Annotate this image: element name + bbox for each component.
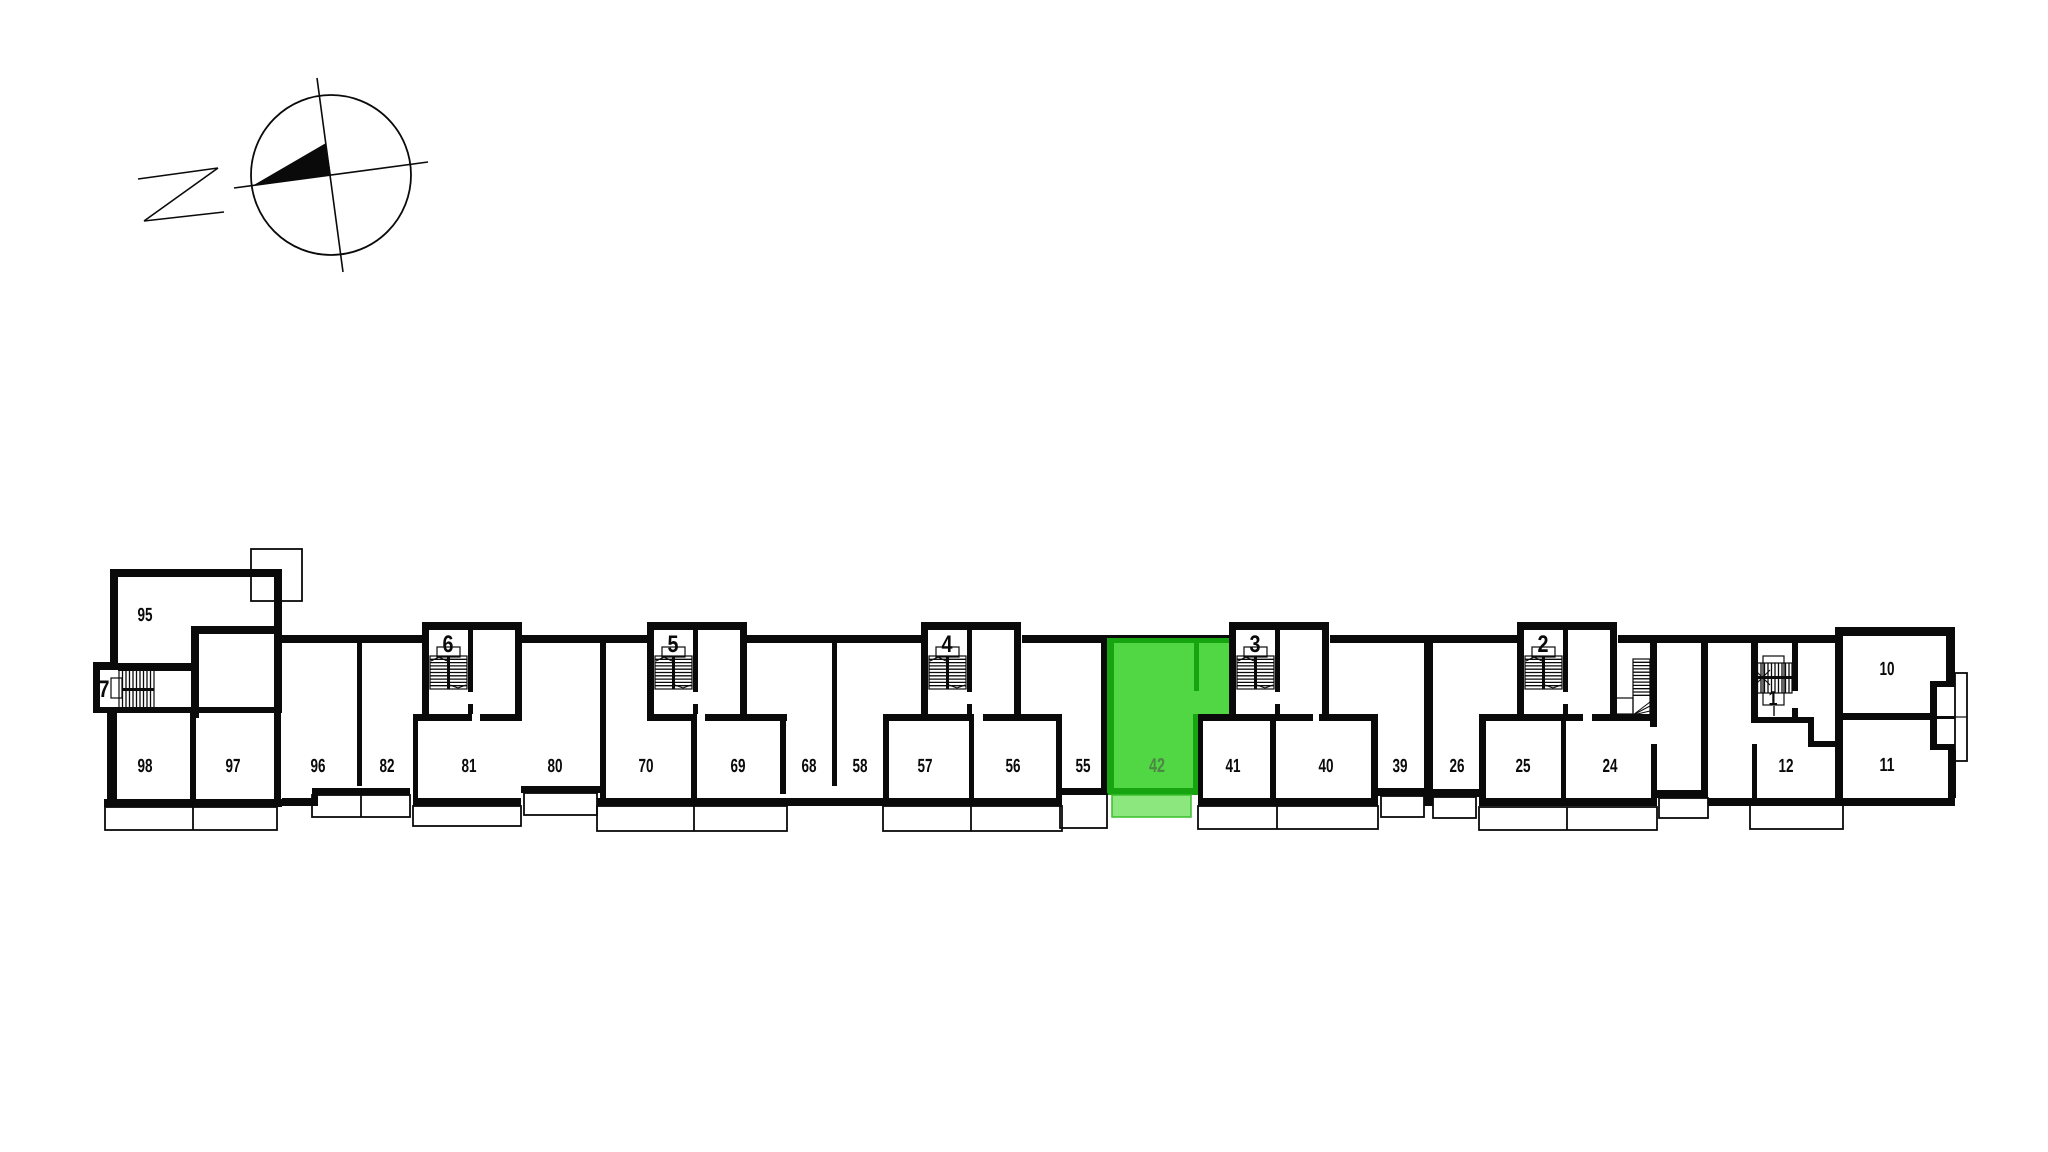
svg-text:55: 55 <box>1076 756 1091 777</box>
svg-text:39: 39 <box>1393 756 1408 777</box>
svg-text:58: 58 <box>853 756 868 777</box>
svg-text:81: 81 <box>462 756 477 777</box>
svg-text:25: 25 <box>1516 756 1531 777</box>
svg-text:10: 10 <box>1880 659 1895 680</box>
svg-text:41: 41 <box>1226 756 1241 777</box>
svg-text:5: 5 <box>668 631 679 658</box>
svg-text:57: 57 <box>918 756 933 777</box>
svg-text:6: 6 <box>443 631 454 658</box>
svg-text:12: 12 <box>1779 756 1794 777</box>
svg-text:80: 80 <box>548 756 563 777</box>
svg-text:68: 68 <box>802 756 817 777</box>
svg-text:11: 11 <box>1880 755 1895 776</box>
svg-text:96: 96 <box>311 756 326 777</box>
svg-text:98: 98 <box>138 756 153 777</box>
svg-text:40: 40 <box>1319 756 1334 777</box>
svg-text:7: 7 <box>99 676 110 703</box>
svg-text:56: 56 <box>1006 756 1021 777</box>
svg-text:97: 97 <box>226 756 241 777</box>
svg-text:3: 3 <box>1250 631 1261 658</box>
svg-text:95: 95 <box>138 605 153 626</box>
svg-text:69: 69 <box>731 756 746 777</box>
svg-text:4: 4 <box>942 631 954 658</box>
svg-text:82: 82 <box>380 756 395 777</box>
svg-text:2: 2 <box>1538 631 1549 658</box>
svg-text:70: 70 <box>639 756 654 777</box>
svg-text:24: 24 <box>1603 756 1618 777</box>
svg-text:1: 1 <box>1769 688 1778 710</box>
svg-text:26: 26 <box>1450 756 1465 777</box>
svg-text:42: 42 <box>1149 755 1165 777</box>
